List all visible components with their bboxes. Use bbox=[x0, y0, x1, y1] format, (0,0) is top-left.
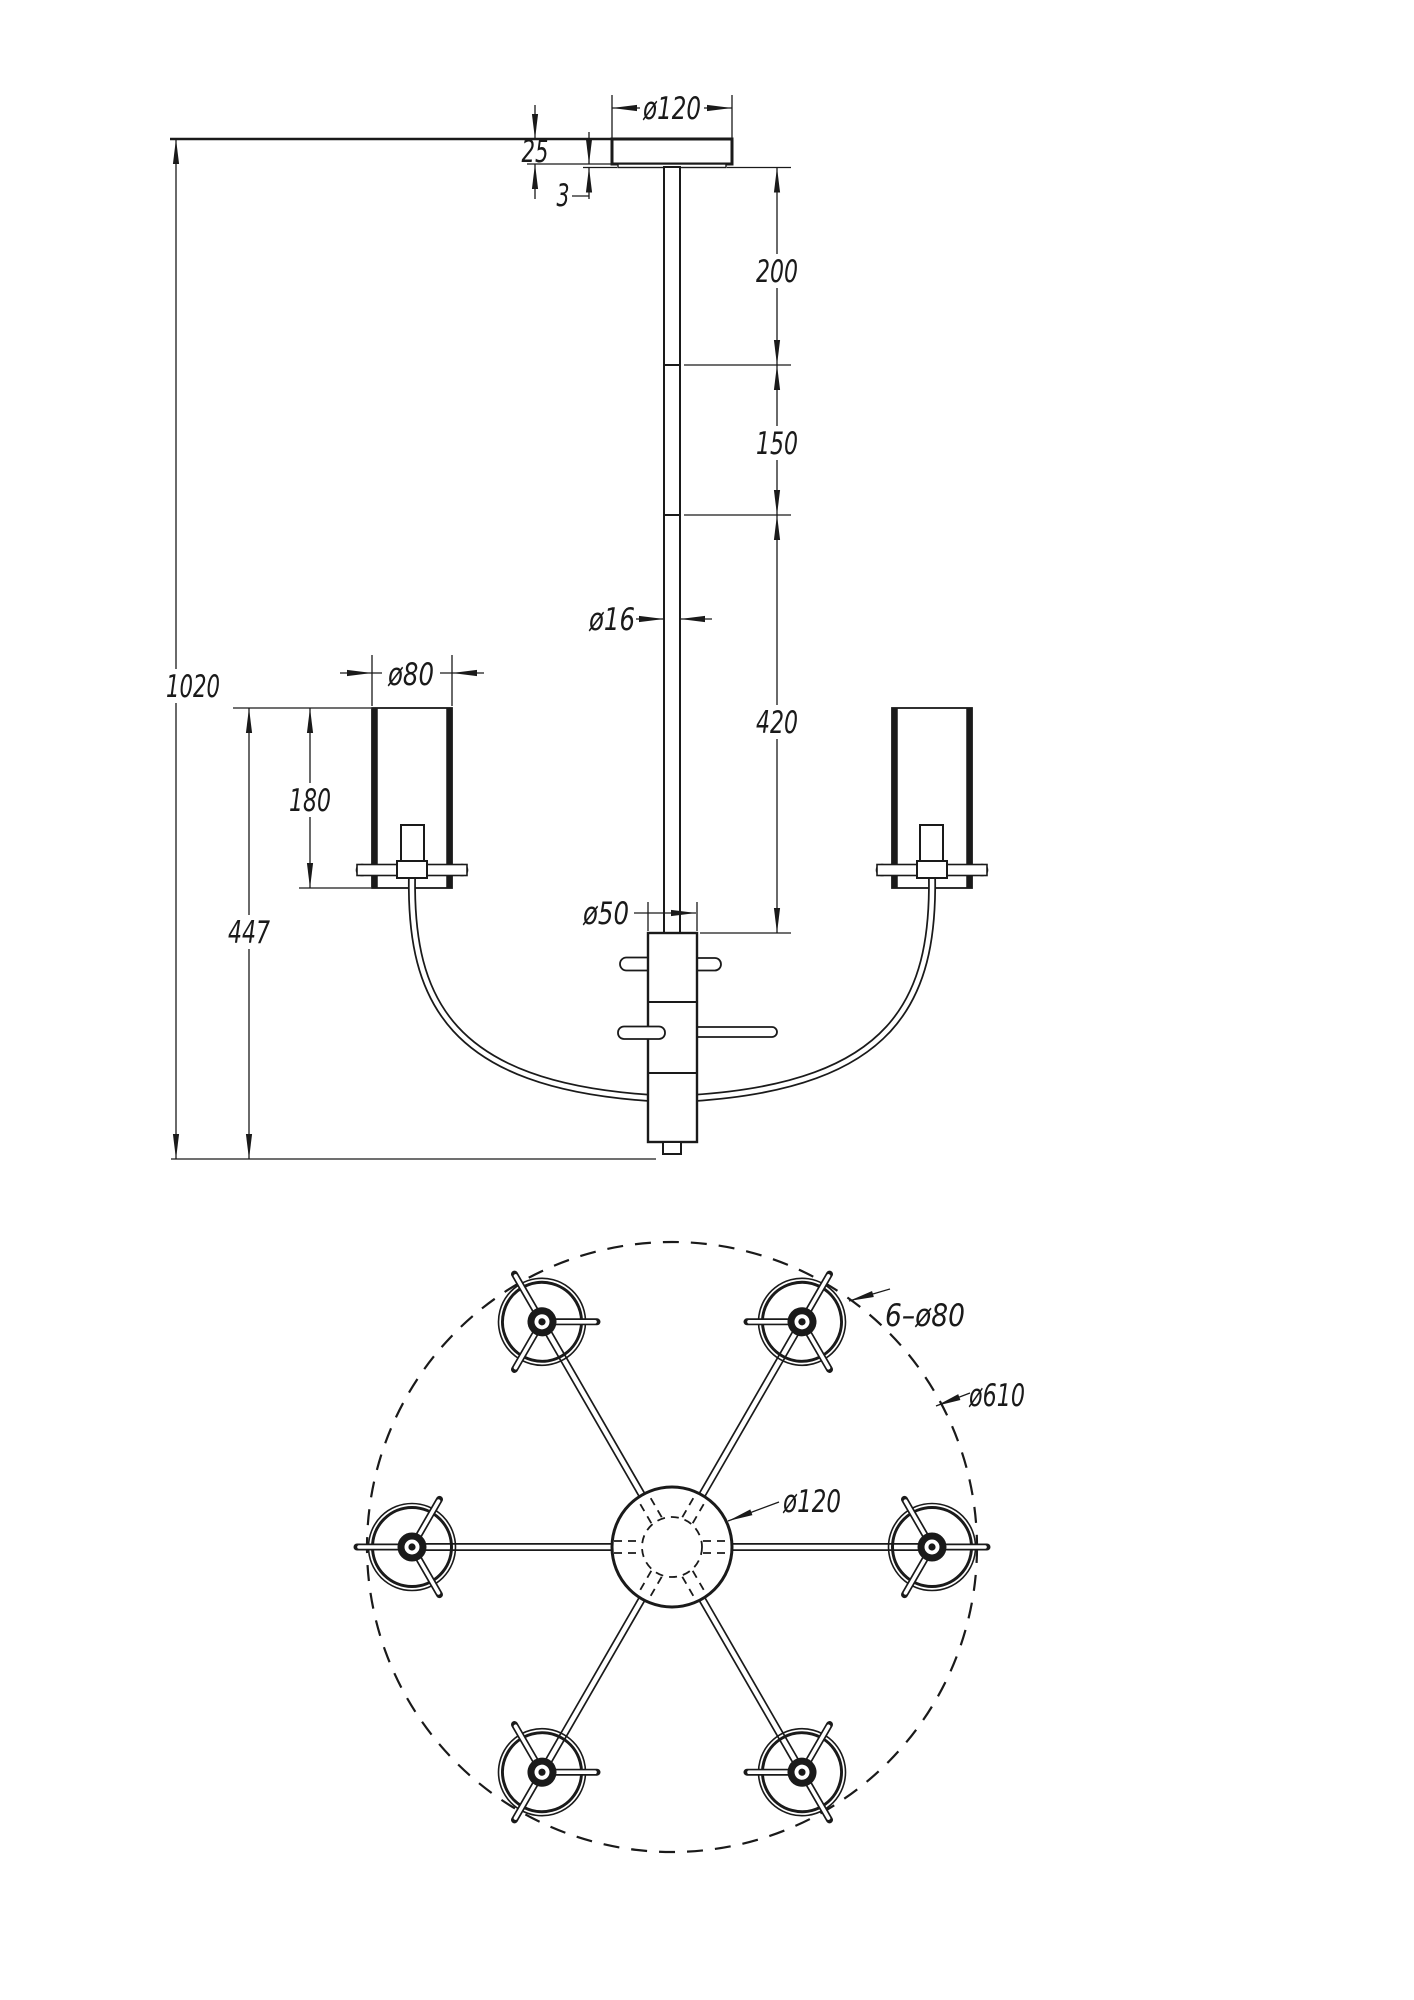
dim-overall-diameter: ø610 bbox=[968, 1378, 1025, 1414]
dim-plan-canopy-diameter: ø120 bbox=[782, 1484, 841, 1520]
down-rod bbox=[664, 167, 680, 933]
front-arm-stub-left bbox=[618, 1027, 665, 1040]
dim-shade-diameter: ø80 bbox=[387, 657, 434, 693]
front-elevation-view: ø120 25 3 200 150 420 ø16 ø80 180 ø50 44… bbox=[160, 91, 988, 1159]
right-arm bbox=[693, 877, 932, 1098]
dim-shade-height: 180 bbox=[289, 783, 331, 819]
plan-canopy-circle bbox=[612, 1487, 732, 1607]
dim-shades-count-diameter: 6–ø80 bbox=[885, 1298, 965, 1334]
plan-shade-bottom-left bbox=[473, 1711, 605, 1844]
dim-drop-to-shade-top: 447 bbox=[228, 915, 270, 951]
dim-hub-diameter: ø50 bbox=[582, 896, 629, 932]
technical-drawing-page: ø120 25 3 200 150 420 ø16 ø80 180 ø50 44… bbox=[0, 0, 1414, 2000]
front-arm-stub-right bbox=[690, 1027, 777, 1037]
plan-shade-top-right bbox=[739, 1250, 871, 1383]
plan-shade-top-left bbox=[473, 1250, 605, 1383]
right-shade-assembly bbox=[693, 708, 988, 1098]
dim-rod-diameter: ø16 bbox=[588, 602, 635, 638]
plan-shade-bottom-right bbox=[739, 1711, 871, 1844]
chandelier-dimension-drawing: ø120 25 3 200 150 420 ø16 ø80 180 ø50 44… bbox=[0, 0, 1414, 2000]
dim-rod-segment-top: 200 bbox=[756, 254, 798, 290]
dim-total-height: 1020 bbox=[166, 669, 220, 705]
plan-view: 6–ø80 ø610 ø120 bbox=[357, 1242, 1025, 1852]
ceiling-canopy bbox=[612, 139, 732, 164]
dim-rod-segment-bottom: 420 bbox=[756, 705, 798, 741]
dim-rod-segment-mid: 150 bbox=[756, 426, 798, 462]
dim-canopy-lip: 3 bbox=[557, 178, 570, 214]
hub-finial bbox=[663, 1142, 681, 1154]
dim-canopy-height: 25 bbox=[522, 134, 549, 170]
dim-canopy-diameter: ø120 bbox=[642, 91, 701, 127]
